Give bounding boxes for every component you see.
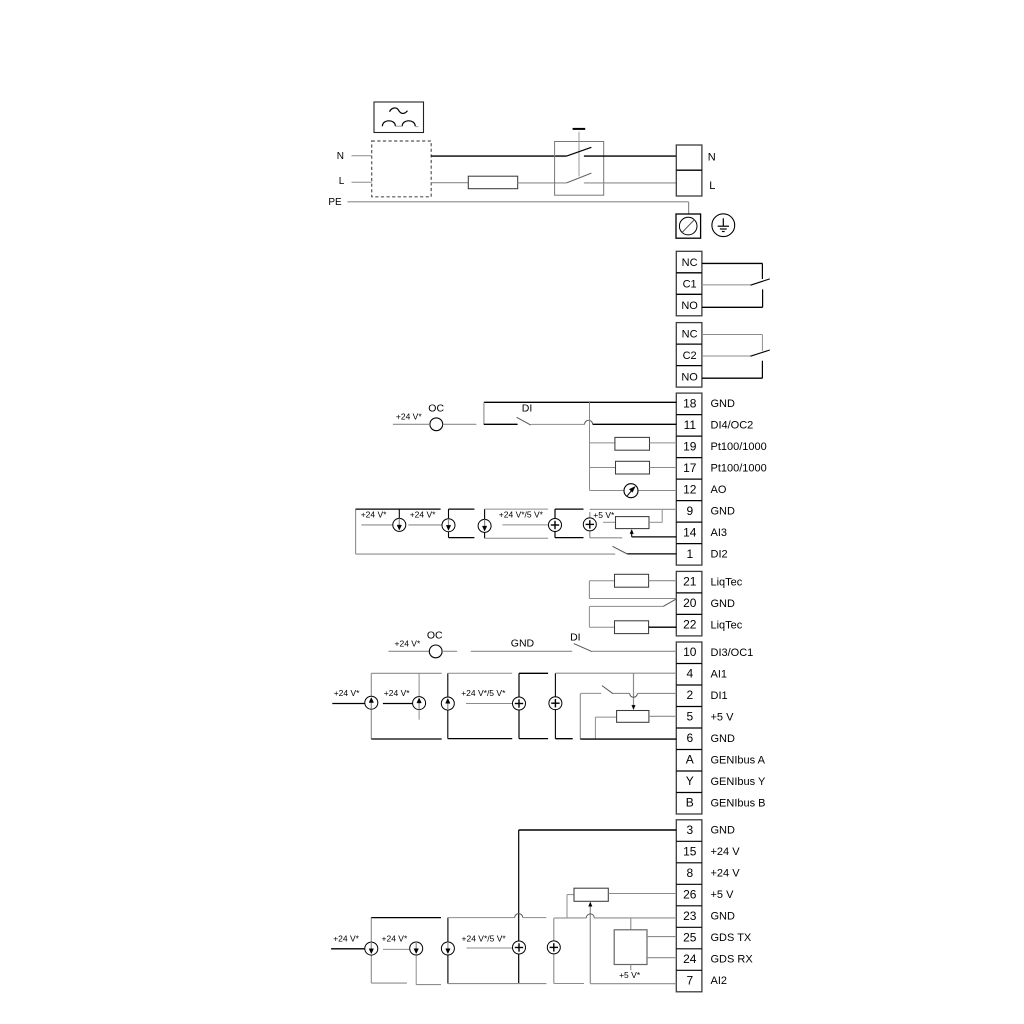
svg-text:25: 25 bbox=[683, 931, 697, 945]
svg-text:+5 V*: +5 V* bbox=[593, 510, 615, 520]
svg-text:NC: NC bbox=[682, 329, 698, 341]
svg-text:+5 V: +5 V bbox=[711, 889, 735, 901]
svg-text:A: A bbox=[686, 753, 694, 767]
svg-text:Y: Y bbox=[686, 774, 694, 788]
svg-text:NO: NO bbox=[681, 300, 698, 312]
svg-text:+24 V*: +24 V* bbox=[395, 639, 421, 649]
svg-text:20: 20 bbox=[683, 596, 697, 610]
svg-text:17: 17 bbox=[683, 461, 697, 475]
svg-text:L: L bbox=[709, 180, 715, 192]
svg-text:GND: GND bbox=[711, 398, 736, 410]
svg-text:C1: C1 bbox=[683, 279, 697, 291]
svg-text:+24 V*: +24 V* bbox=[396, 411, 422, 421]
svg-text:NO: NO bbox=[681, 372, 698, 384]
svg-text:AO: AO bbox=[711, 484, 727, 496]
svg-text:+24 V*/5 V*: +24 V*/5 V* bbox=[499, 509, 544, 519]
svg-text:GND: GND bbox=[511, 637, 535, 649]
svg-text:GENIbus A: GENIbus A bbox=[711, 754, 766, 766]
svg-text:C2: C2 bbox=[683, 350, 697, 362]
svg-text:AI1: AI1 bbox=[711, 668, 728, 680]
svg-text:3: 3 bbox=[686, 823, 693, 837]
svg-text:15: 15 bbox=[683, 845, 697, 859]
svg-text:+24 V*: +24 V* bbox=[361, 510, 387, 520]
svg-text:8: 8 bbox=[686, 866, 693, 880]
svg-text:AI2: AI2 bbox=[711, 975, 728, 987]
svg-text:23: 23 bbox=[683, 909, 697, 923]
svg-text:21: 21 bbox=[683, 575, 697, 589]
svg-text:10: 10 bbox=[683, 645, 697, 659]
svg-text:LiqTec: LiqTec bbox=[711, 576, 743, 588]
svg-text:DI: DI bbox=[570, 631, 581, 643]
svg-text:+24 V*/5 V*: +24 V*/5 V* bbox=[461, 688, 506, 698]
svg-text:GENIbus Y: GENIbus Y bbox=[711, 776, 766, 788]
svg-text:4: 4 bbox=[686, 667, 693, 681]
svg-text:6: 6 bbox=[686, 731, 693, 745]
svg-text:22: 22 bbox=[683, 618, 697, 632]
svg-text:GND: GND bbox=[711, 825, 736, 837]
svg-text:DI: DI bbox=[522, 403, 533, 415]
svg-text:Pt100/1000: Pt100/1000 bbox=[711, 463, 767, 475]
svg-text:1: 1 bbox=[686, 547, 693, 561]
svg-text:+5 V*: +5 V* bbox=[619, 970, 641, 980]
svg-text:DI4/OC2: DI4/OC2 bbox=[711, 420, 754, 432]
svg-text:N: N bbox=[337, 151, 344, 162]
svg-text:GND: GND bbox=[711, 506, 736, 518]
svg-text:GND: GND bbox=[711, 733, 736, 745]
svg-text:B: B bbox=[686, 796, 694, 810]
svg-text:7: 7 bbox=[686, 974, 693, 988]
svg-text:GDS RX: GDS RX bbox=[711, 954, 754, 966]
svg-text:GENIbus B: GENIbus B bbox=[711, 797, 766, 809]
svg-text:L: L bbox=[339, 176, 345, 187]
svg-text:2: 2 bbox=[686, 688, 693, 702]
svg-text:LiqTec: LiqTec bbox=[711, 619, 743, 631]
svg-text:AI3: AI3 bbox=[711, 527, 728, 539]
svg-text:18: 18 bbox=[683, 396, 697, 410]
svg-text:+24 V*: +24 V* bbox=[384, 688, 410, 698]
svg-text:GND: GND bbox=[711, 911, 736, 923]
svg-text:14: 14 bbox=[683, 525, 697, 539]
svg-text:26: 26 bbox=[683, 888, 697, 902]
svg-text:+24 V*: +24 V* bbox=[333, 934, 359, 944]
svg-text:DI1: DI1 bbox=[711, 690, 728, 702]
svg-text:+24 V*: +24 V* bbox=[334, 688, 360, 698]
svg-text:+24 V: +24 V bbox=[711, 868, 741, 880]
svg-text:9: 9 bbox=[686, 504, 693, 518]
svg-text:+24 V*: +24 V* bbox=[410, 510, 436, 520]
svg-text:DI2: DI2 bbox=[711, 549, 728, 561]
svg-text:N: N bbox=[708, 152, 716, 164]
svg-text:PE: PE bbox=[328, 197, 342, 208]
svg-text:Pt100/1000: Pt100/1000 bbox=[711, 441, 767, 453]
svg-text:DI3/OC1: DI3/OC1 bbox=[711, 647, 754, 659]
svg-text:GND: GND bbox=[711, 598, 736, 610]
svg-text:5: 5 bbox=[686, 710, 693, 724]
svg-text:24: 24 bbox=[683, 952, 697, 966]
svg-text:+24 V: +24 V bbox=[711, 846, 741, 858]
svg-text:12: 12 bbox=[683, 482, 697, 496]
svg-text:+24 V*: +24 V* bbox=[382, 934, 408, 944]
svg-text:OC: OC bbox=[428, 402, 444, 414]
svg-text:+24 V*/5 V*: +24 V*/5 V* bbox=[462, 934, 507, 944]
svg-text:OC: OC bbox=[427, 629, 443, 641]
svg-text:GDS TX: GDS TX bbox=[711, 932, 752, 944]
svg-text:19: 19 bbox=[683, 439, 697, 453]
svg-text:11: 11 bbox=[684, 418, 697, 432]
svg-text:NC: NC bbox=[682, 257, 698, 269]
svg-text:+5 V: +5 V bbox=[711, 711, 735, 723]
